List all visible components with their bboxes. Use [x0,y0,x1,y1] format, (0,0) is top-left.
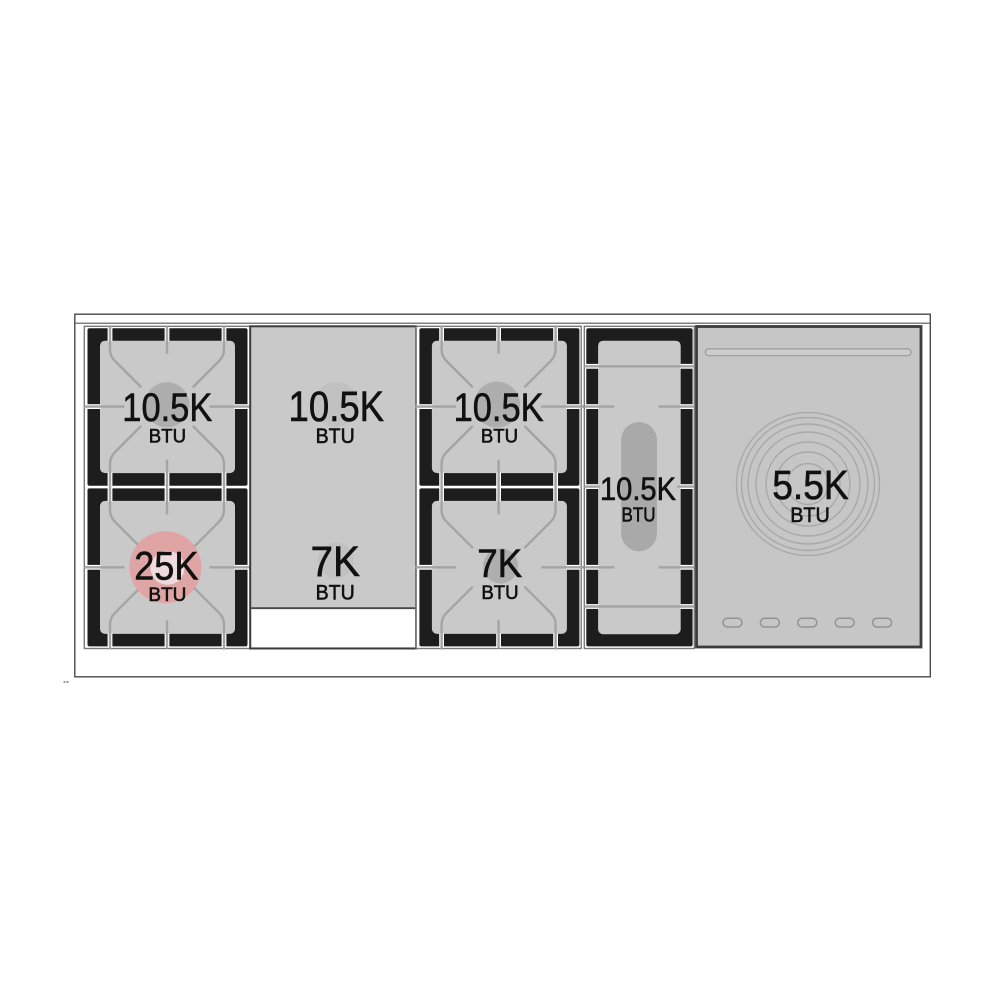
svg-text:BTU: BTU [481,582,518,604]
svg-text:BTU: BTU [316,580,355,604]
svg-text:BTU: BTU [316,424,355,448]
svg-text:7K: 7K [477,541,522,586]
svg-text:BTU: BTU [790,503,830,527]
svg-text:BTU: BTU [481,425,518,447]
svg-text:10.5K: 10.5K [454,385,544,430]
svg-text:7K: 7K [310,539,360,586]
svg-text:5.5K: 5.5K [772,462,849,508]
svg-text:BTU: BTU [148,584,186,606]
svg-text:10.5K: 10.5K [600,471,676,507]
svg-text:10.5K: 10.5K [122,385,212,430]
svg-text:25K: 25K [134,543,198,588]
svg-text:BTU: BTU [149,425,186,447]
svg-text:BTU: BTU [622,505,656,527]
